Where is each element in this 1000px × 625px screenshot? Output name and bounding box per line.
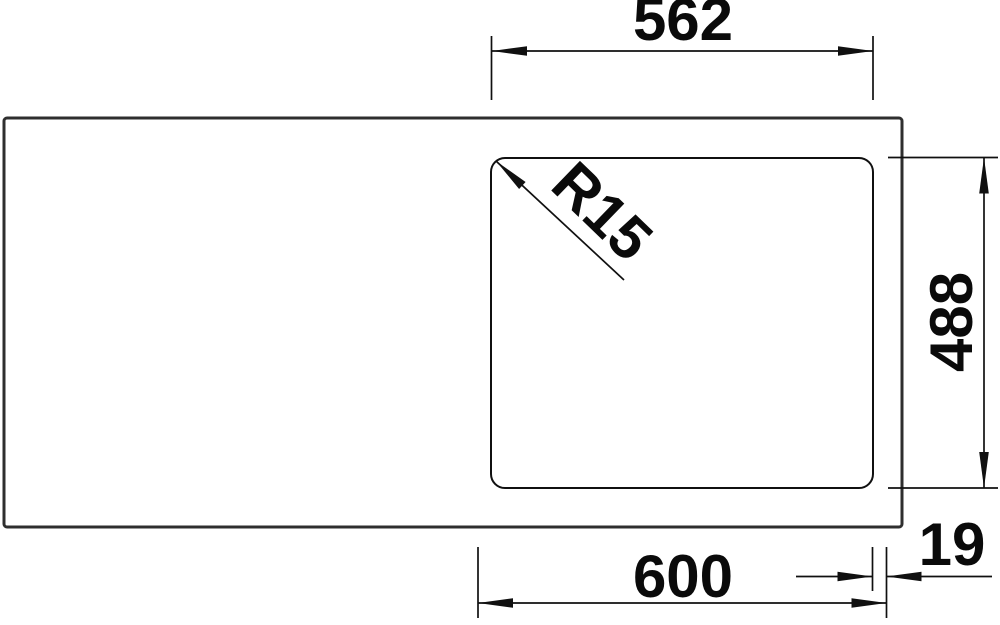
arrowhead-up-icon [979, 158, 989, 194]
sink-outline [4, 118, 902, 527]
arrowhead-left-icon [887, 572, 922, 582]
drawing-canvas: 562 R15 488 600 [0, 0, 1000, 625]
dimension-bowl-width: 562 [492, 0, 874, 100]
dimension-label-cutout-width: 600 [633, 543, 733, 610]
arrowhead-right-icon [838, 572, 873, 582]
arrowhead-right-icon [852, 598, 887, 608]
dimension-bowl-depth: 488 [888, 158, 998, 489]
dimension-cutout-width: 600 [478, 543, 887, 618]
arrowhead-down-icon [979, 452, 989, 488]
arrowhead-left-icon [492, 46, 527, 56]
arrowhead-left-icon [478, 598, 513, 608]
dimension-label-bowl-width: 562 [633, 0, 733, 53]
dimension-label-edge-gap: 19 [919, 511, 986, 578]
dimension-label-bowl-depth: 488 [918, 272, 985, 372]
sink-technical-drawing: 562 R15 488 600 [0, 0, 1000, 625]
arrowhead-right-icon [838, 46, 873, 56]
